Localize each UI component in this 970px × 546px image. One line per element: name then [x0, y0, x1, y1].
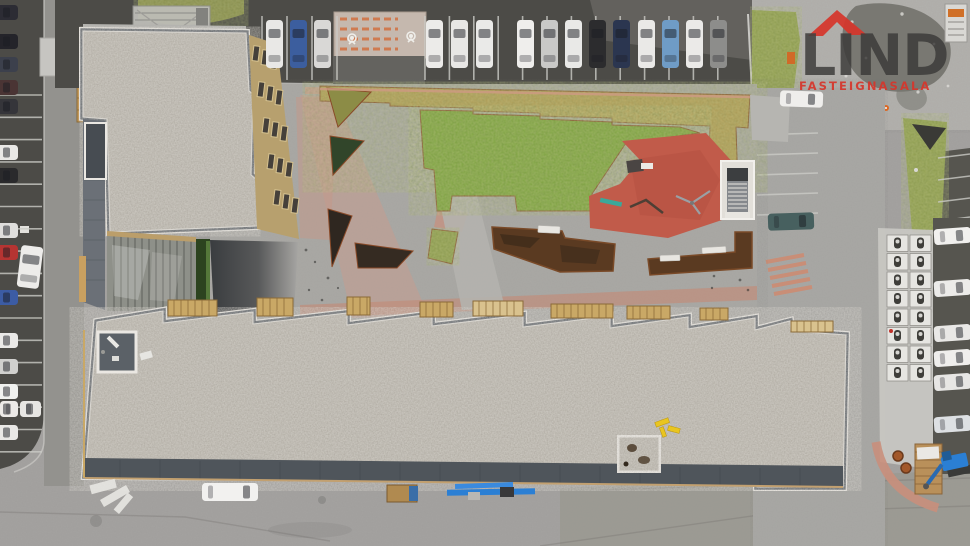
parked-car — [0, 245, 18, 260]
parked-car — [933, 349, 970, 368]
right-lot-asphalt — [933, 218, 970, 474]
facade-window — [280, 126, 288, 142]
parked-car — [0, 359, 18, 374]
lumber-frame — [347, 297, 370, 315]
facade-window — [285, 162, 293, 178]
lower-building — [84, 297, 846, 487]
hatch-soil-mark — [624, 462, 629, 467]
lumber-frame — [551, 304, 613, 318]
parked-car — [541, 20, 558, 68]
parked-car — [0, 290, 18, 305]
lumber-frame — [420, 302, 453, 317]
facade-window — [267, 154, 275, 170]
facade-window — [257, 82, 265, 98]
parked-car — [933, 373, 970, 392]
roof-debris — [112, 356, 119, 361]
wooden-crate — [387, 485, 418, 502]
parked-car — [933, 227, 970, 246]
bench — [538, 225, 560, 233]
traffic-cone-top — [885, 107, 887, 109]
motorcycle-stall — [887, 272, 908, 289]
roof-inset-panel — [85, 123, 106, 179]
facade-window — [273, 190, 281, 206]
play-table — [641, 163, 653, 169]
roof-debris — [101, 350, 105, 354]
pedestrian-crossing-pad — [334, 12, 426, 58]
lower-building-roof — [84, 311, 846, 487]
timber-beam — [79, 256, 86, 302]
lumber-frame — [627, 306, 670, 319]
parked-car — [290, 20, 307, 68]
motorcycle-stall — [910, 309, 931, 326]
parked-car — [426, 20, 443, 68]
facade-window — [276, 158, 284, 174]
lumber-frame — [168, 300, 217, 316]
pavement-stain — [318, 496, 326, 504]
lumber-frame — [473, 301, 523, 316]
motorcycle-stall — [887, 309, 908, 326]
red-marker — [889, 329, 893, 333]
parked-car — [589, 20, 606, 68]
facade-window — [282, 194, 290, 210]
roof-hatch-frame — [618, 436, 660, 472]
parked-car — [0, 223, 18, 238]
parked-car — [314, 20, 331, 68]
teal-car — [768, 212, 815, 231]
logo-subtitle: FASTEIGNASALA — [799, 79, 931, 93]
cable-spool — [893, 451, 903, 461]
delivery-van — [202, 483, 258, 501]
parked-car — [686, 20, 703, 68]
motorcycle-stall — [910, 272, 931, 289]
motorcycle-stall — [910, 346, 931, 363]
parked-car — [517, 20, 534, 68]
motorcycle-stall — [887, 235, 908, 252]
motorcycle-stall — [910, 328, 931, 345]
orange-equipment — [787, 52, 795, 64]
lumber-frame — [257, 298, 293, 316]
hatch-soil-mark — [638, 456, 650, 464]
facade-window — [271, 122, 279, 138]
bench — [702, 246, 726, 253]
utility-cabinet — [40, 38, 57, 76]
hatch-soil-mark — [627, 444, 637, 452]
parked-car — [0, 5, 18, 20]
pavement-stain — [90, 515, 102, 527]
parked-car — [0, 168, 18, 183]
roof-skylight-panel — [98, 332, 136, 372]
motorcycle-stall — [910, 365, 931, 382]
light-pole — [914, 168, 918, 172]
facade-window — [291, 198, 299, 214]
parked-car — [933, 324, 970, 343]
lumber-frame — [791, 321, 833, 332]
excavator-cab — [941, 451, 952, 462]
stair-access-structure — [721, 161, 754, 219]
motorcycle-stall — [887, 254, 908, 271]
hedge-highlight — [206, 241, 210, 305]
parked-car — [0, 34, 18, 49]
facade-window — [262, 118, 270, 134]
parked-car — [0, 384, 18, 399]
motorcycle-stall — [910, 235, 931, 252]
parked-car — [0, 57, 18, 72]
lumber-frame — [700, 308, 728, 320]
parked-car — [933, 415, 970, 434]
building-south-facade — [107, 231, 210, 311]
west-slate-wing — [79, 119, 106, 310]
aerial-photo: LIND FASTEIGNASALA — [0, 0, 970, 546]
grass-patch — [752, 10, 800, 90]
parked-car — [451, 20, 468, 68]
motorcycle-stall — [910, 254, 931, 271]
parked-car — [662, 20, 679, 68]
bench — [660, 255, 680, 262]
parked-car — [933, 279, 970, 298]
parked-car — [0, 145, 18, 160]
aerial-photo-stage: LIND FASTEIGNASALA — [0, 0, 970, 546]
parked-car — [613, 20, 630, 68]
parked-car — [20, 401, 41, 417]
parked-car — [0, 333, 18, 348]
motorcycle-stall — [887, 346, 908, 363]
parked-car — [0, 80, 18, 95]
parked-car — [710, 20, 727, 68]
stair-steps — [728, 184, 747, 208]
motorcycle-stall — [887, 291, 908, 308]
pavement-stain — [268, 522, 352, 538]
parked-car — [565, 20, 582, 68]
motorcycle-stall — [887, 365, 908, 382]
parked-car — [0, 425, 18, 440]
watermark-logo: LIND FASTEIGNASALA — [799, 10, 949, 93]
parked-car — [0, 401, 18, 417]
parked-car — [0, 99, 18, 114]
motorcycle-stall — [910, 291, 931, 308]
cable-spool — [901, 463, 911, 473]
facade-window — [266, 86, 274, 102]
facade-window — [252, 46, 260, 62]
upper-building-roof — [83, 31, 257, 232]
parked-car — [476, 20, 493, 68]
facade-window — [275, 90, 283, 106]
parked-car — [638, 20, 655, 68]
parked-car — [266, 20, 283, 68]
